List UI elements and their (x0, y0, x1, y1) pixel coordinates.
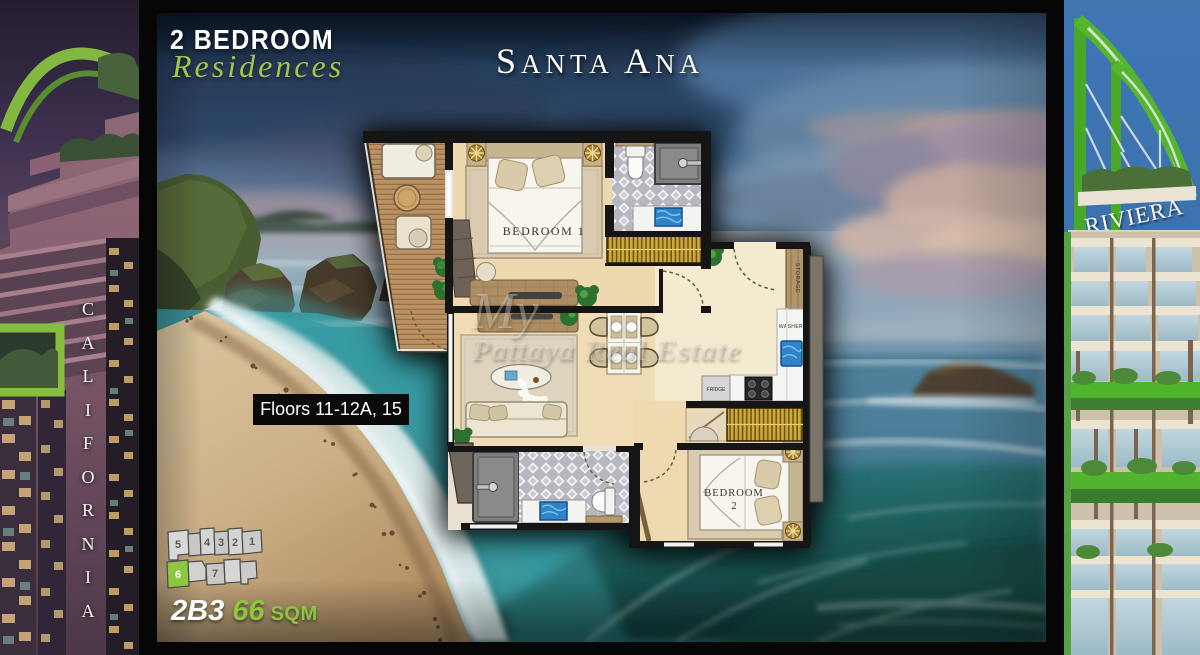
svg-text:6: 6 (175, 569, 181, 581)
svg-text:2: 2 (731, 501, 736, 512)
svg-text:5: 5 (175, 539, 181, 551)
svg-text:3: 3 (218, 537, 224, 549)
svg-text:2: 2 (232, 537, 238, 549)
svg-text:BEDROOM 1: BEDROOM 1 (503, 224, 586, 238)
svg-text:7: 7 (212, 568, 218, 580)
svg-text:4: 4 (204, 537, 211, 549)
svg-text:BEDROOM: BEDROOM (704, 488, 764, 499)
svg-text:1: 1 (249, 536, 255, 548)
svg-text:FRIDGE: FRIDGE (707, 387, 727, 393)
svg-text:STORAGE: STORAGE (794, 263, 800, 293)
svg-text:WASHER: WASHER (779, 324, 803, 330)
